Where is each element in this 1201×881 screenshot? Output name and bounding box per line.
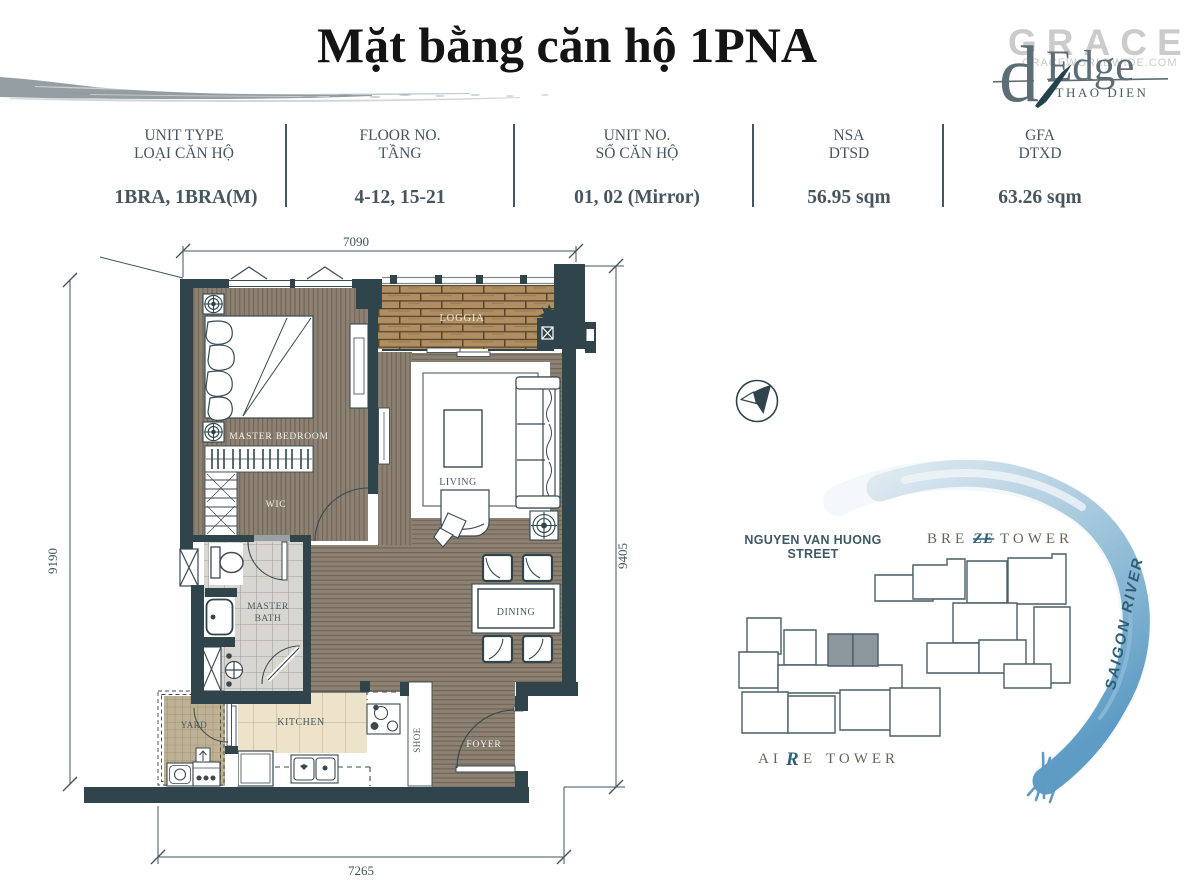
svg-text:LOẠI CĂN HỘ: LOẠI CĂN HỘ: [134, 145, 234, 162]
svg-text:R: R: [785, 749, 803, 770]
svg-text:01, 02 (Mirror): 01, 02 (Mirror): [574, 187, 700, 208]
svg-text:7265: 7265: [348, 863, 374, 878]
svg-text:DTXD: DTXD: [1018, 145, 1061, 162]
svg-text:UNIT TYPE: UNIT TYPE: [144, 127, 223, 144]
svg-text:BRE: BRE: [927, 531, 968, 547]
svg-text:SỐ CĂN HỘ: SỐ CĂN HỘ: [596, 144, 679, 162]
svg-text:FLOOR NO.: FLOOR NO.: [360, 127, 441, 144]
svg-text:DTSD: DTSD: [829, 145, 869, 162]
svg-text:BATH: BATH: [255, 614, 282, 624]
svg-text:d: d: [999, 31, 1039, 119]
svg-text:LIVING: LIVING: [439, 477, 476, 488]
svg-text:MASTER BEDROOM: MASTER BEDROOM: [229, 432, 329, 442]
svg-text:9405: 9405: [615, 543, 630, 569]
svg-text:THAO DIEN: THAO DIEN: [1056, 85, 1149, 100]
svg-text:TẦNG: TẦNG: [378, 145, 421, 162]
svg-text:ZE: ZE: [972, 531, 994, 547]
svg-text:AI: AI: [758, 751, 782, 767]
svg-text:DINING: DINING: [497, 607, 536, 618]
svg-text:KITCHEN: KITCHEN: [277, 717, 324, 728]
svg-text:7090: 7090: [343, 234, 369, 249]
svg-text:FOYER: FOYER: [466, 740, 501, 750]
svg-text:9190: 9190: [45, 548, 60, 574]
svg-text:1BRA, 1BRA(M): 1BRA, 1BRA(M): [115, 187, 258, 208]
svg-text:GFA: GFA: [1025, 127, 1056, 144]
svg-text:NSA: NSA: [833, 127, 865, 144]
svg-text:MASTER: MASTER: [247, 602, 289, 612]
svg-text:LOGGIA: LOGGIA: [439, 313, 484, 324]
svg-text:STREET: STREET: [787, 547, 838, 561]
svg-text:YARD: YARD: [181, 720, 208, 730]
svg-text:UNIT NO.: UNIT NO.: [604, 127, 671, 144]
svg-text:WIC: WIC: [266, 500, 287, 510]
svg-text:E: E: [803, 751, 816, 767]
svg-text:TOWER: TOWER: [1000, 531, 1073, 547]
svg-text:NGUYEN VAN HUONG: NGUYEN VAN HUONG: [744, 533, 881, 547]
svg-text:SHOE: SHOE: [412, 727, 422, 753]
svg-text:4-12, 15-21: 4-12, 15-21: [355, 187, 446, 208]
svg-text:TOWER: TOWER: [826, 751, 899, 767]
svg-text:63.26 sqm: 63.26 sqm: [998, 187, 1081, 208]
svg-text:56.95 sqm: 56.95 sqm: [807, 187, 890, 208]
svg-text:Mặt bằng căn hộ 1PNA: Mặt bằng căn hộ 1PNA: [317, 17, 817, 73]
